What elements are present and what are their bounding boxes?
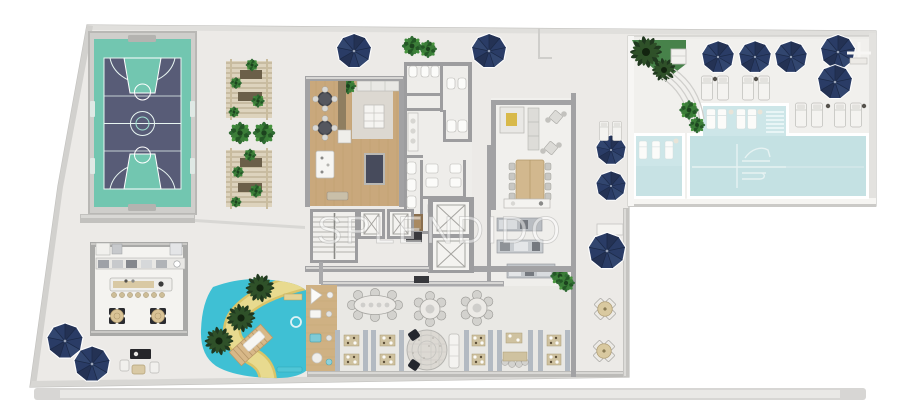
svg-text:SPLENDIDO: SPLENDIDO — [317, 210, 564, 252]
